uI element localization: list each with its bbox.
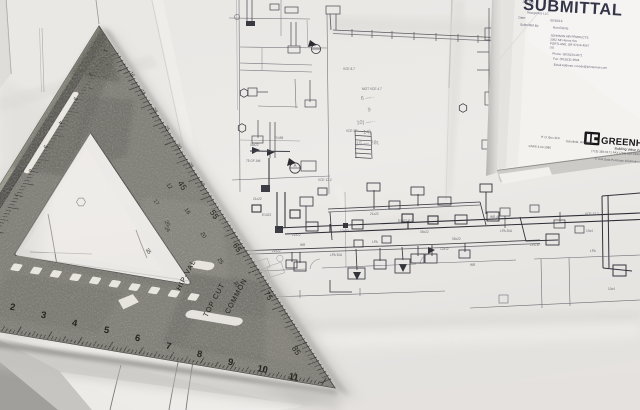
- svg-text:6 —··: 6 —··: [361, 95, 375, 102]
- svg-text:70 MB: 70 MB: [274, 136, 283, 140]
- svg-text:VCE 12.2: VCE 12.2: [585, 212, 599, 216]
- svg-text:75 OF AM: 75 OF AM: [246, 159, 261, 163]
- svg-text:US: US: [550, 45, 554, 49]
- svg-text:12x12: 12x12: [440, 247, 449, 251]
- svg-text:MOT VCE 4.7: MOT VCE 4.7: [362, 87, 382, 91]
- svg-text:10x4: 10x4: [608, 287, 615, 291]
- svg-text:LPA: LPA: [372, 240, 379, 244]
- svg-text:21x22: 21x22: [370, 212, 379, 216]
- svg-text:LPA: LPA: [590, 249, 597, 253]
- svg-text:21x22: 21x22: [292, 233, 301, 237]
- svg-text:VCE 12.2: VCE 12.2: [318, 178, 332, 182]
- svg-text:9: 9: [367, 107, 370, 113]
- svg-text:05x22: 05x22: [420, 230, 429, 234]
- svg-text:LPA 30A: LPA 30A: [330, 253, 343, 257]
- svg-text:05x22: 05x22: [452, 237, 461, 241]
- svg-text:10x4: 10x4: [586, 229, 593, 233]
- svg-text:Date:: Date:: [518, 15, 526, 19]
- svg-text:10: 10: [256, 362, 268, 375]
- svg-text:21x22: 21x22: [272, 249, 281, 253]
- svg-text:05/10/13: 05/10/13: [550, 18, 563, 23]
- svg-text:WR: WR: [470, 263, 476, 267]
- svg-text:11: 11: [288, 370, 300, 383]
- svg-text:21x22: 21x22: [253, 197, 262, 201]
- svg-text:WR: WR: [300, 243, 306, 247]
- svg-text:VCE 8P: VCE 8P: [346, 129, 357, 133]
- svg-text:A: A: [294, 163, 297, 168]
- svg-text:E1422: E1422: [262, 213, 271, 217]
- svg-text:05x22: 05x22: [250, 143, 259, 147]
- svg-text:WR 4P: WR 4P: [490, 215, 500, 219]
- svg-text:12x22: 12x22: [340, 229, 349, 233]
- svg-text:LPA 30A: LPA 30A: [500, 229, 513, 233]
- svg-text:VCE 8.7: VCE 8.7: [343, 67, 355, 71]
- svg-text:E1422 P.1: E1422 P.1: [398, 219, 413, 223]
- svg-text:14): 14): [363, 129, 372, 136]
- svg-text:Job Tag:: Job Tag:: [522, 0, 534, 4]
- svg-text:LPA 4P: LPA 4P: [530, 243, 540, 247]
